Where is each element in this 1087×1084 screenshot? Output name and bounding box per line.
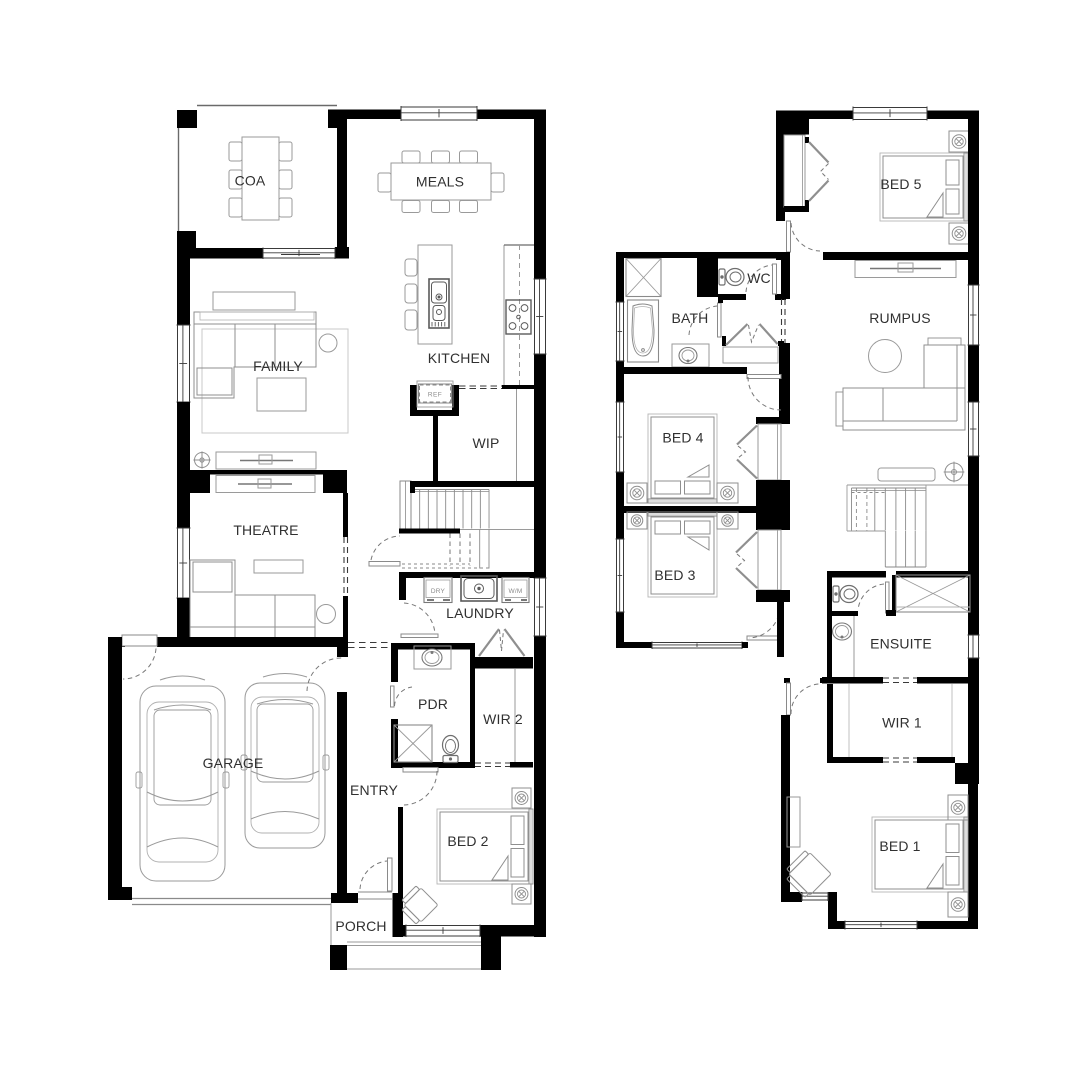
svg-text:WIP: WIP bbox=[473, 435, 500, 451]
svg-text:W/M: W/M bbox=[509, 588, 523, 595]
svg-text:BED 5: BED 5 bbox=[880, 176, 921, 192]
svg-text:WIR 2: WIR 2 bbox=[483, 711, 523, 727]
svg-text:GARAGE: GARAGE bbox=[203, 755, 264, 771]
svg-text:BATH: BATH bbox=[672, 310, 709, 326]
svg-text:PDR: PDR bbox=[418, 696, 448, 712]
svg-text:PORCH: PORCH bbox=[335, 918, 386, 934]
svg-text:REF: REF bbox=[428, 392, 442, 399]
svg-text:BED 4: BED 4 bbox=[662, 430, 703, 446]
svg-text:THEATRE: THEATRE bbox=[233, 522, 298, 538]
svg-text:MEALS: MEALS bbox=[416, 174, 464, 190]
svg-text:BED 2: BED 2 bbox=[447, 833, 488, 849]
svg-text:BED 1: BED 1 bbox=[879, 838, 920, 854]
svg-text:WIR 1: WIR 1 bbox=[882, 715, 922, 731]
svg-text:LAUNDRY: LAUNDRY bbox=[446, 605, 514, 621]
svg-text:ENTRY: ENTRY bbox=[350, 782, 398, 798]
svg-text:KITCHEN: KITCHEN bbox=[428, 350, 491, 366]
svg-text:FAMILY: FAMILY bbox=[253, 358, 303, 374]
svg-text:DRY: DRY bbox=[431, 588, 446, 595]
svg-text:COA: COA bbox=[235, 173, 266, 189]
svg-text:BED 3: BED 3 bbox=[654, 567, 695, 583]
svg-text:WC: WC bbox=[747, 270, 771, 286]
svg-text:RUMPUS: RUMPUS bbox=[869, 310, 931, 326]
svg-text:ENSUITE: ENSUITE bbox=[870, 636, 932, 652]
